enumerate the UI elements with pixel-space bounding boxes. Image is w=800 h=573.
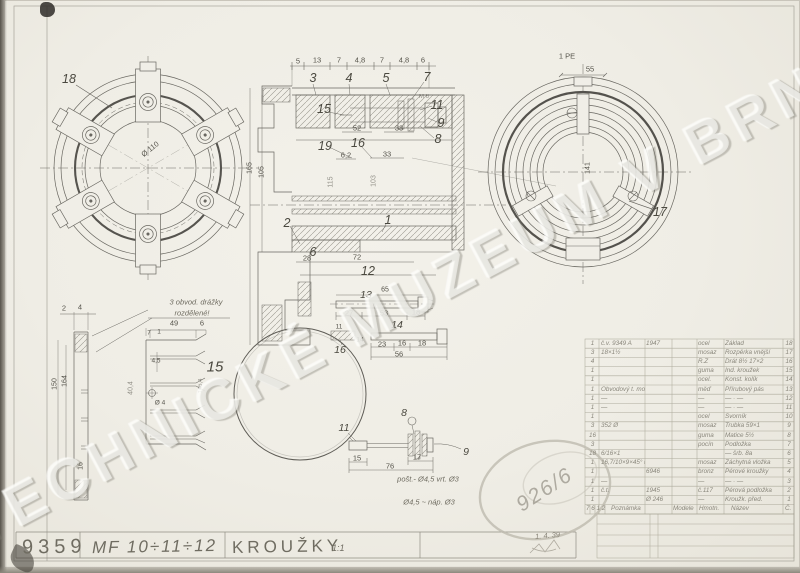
table-cell: 18 xyxy=(784,340,794,347)
balloon-part-8-detail: 8 xyxy=(401,407,407,419)
dim-label: 103 xyxy=(371,175,378,187)
dim-label: 53 xyxy=(380,309,388,318)
balloon-part-9: 9 xyxy=(438,116,445,130)
table-cell: — xyxy=(601,478,645,485)
table-cell: 4 xyxy=(586,358,599,365)
balloon-part-12: 12 xyxy=(361,264,375,278)
table-row: 186/16×1— šrb. 8a6 xyxy=(585,449,794,458)
table-cell: — xyxy=(601,404,645,411)
dim-label: 55 xyxy=(586,65,594,74)
table-cell: Ø 246 xyxy=(646,496,696,503)
table-cell: 11 xyxy=(784,404,794,411)
dim-label: 6 xyxy=(421,56,425,65)
dim-label: 52 xyxy=(353,124,361,133)
table-cell: ocel xyxy=(698,340,724,347)
balloon-part-6: 6 xyxy=(310,245,317,259)
table-cell: — · — xyxy=(725,395,783,402)
balloon-part-16: 16 xyxy=(351,136,365,150)
table-cell: 1 xyxy=(586,404,599,411)
table-cell: 1 xyxy=(586,376,599,383)
dim-label: 27 xyxy=(345,309,353,318)
dim-label: 7 xyxy=(337,56,341,65)
dim-label: 165 xyxy=(247,162,254,174)
balloon-part-4: 4 xyxy=(346,71,353,85)
table-cell: Záchytná vložka xyxy=(725,459,783,466)
dim-label: 6,2 xyxy=(341,151,351,160)
dim-label: 1 xyxy=(157,329,161,336)
balloon-part-9-detail: 9 xyxy=(463,446,469,458)
drawing-title: KROUŽKY xyxy=(232,536,343,558)
table-cell: — xyxy=(601,395,645,402)
balloon-part-17: 17 xyxy=(653,205,667,219)
thread-note: M 6 xyxy=(419,94,429,100)
table-row: 1——— · —3 xyxy=(585,477,794,486)
balloon-part-15: 15 xyxy=(317,102,331,116)
scan-blob-top-left xyxy=(40,2,55,17)
table-cell: 3 xyxy=(586,441,599,448)
table-cell: 14 xyxy=(784,376,794,383)
table-row: 116,7/10×9×45° ØmosazZáchytná vložka5 xyxy=(585,459,794,468)
hole-note-line1: pošt.- Ø4,5 vrt. Ø3 xyxy=(397,475,459,484)
balloon-part-19: 19 xyxy=(318,139,332,153)
balloon-part-2: 2 xyxy=(284,216,291,230)
table-cell: 1945 xyxy=(646,487,696,494)
drawing-scale: 1:1 xyxy=(332,543,345,553)
dim-label: 16 xyxy=(398,339,406,348)
dim-label: 49 xyxy=(170,319,178,328)
dim-label: 164 xyxy=(62,375,69,387)
dim-label: 146,4 xyxy=(198,378,204,393)
table-cell: 1 xyxy=(586,395,599,402)
table-cell: mosaz xyxy=(698,422,724,429)
table-cell: 18 xyxy=(586,450,599,457)
parts-table-footer: 7 6 1 2 Poznámka Modele Hmotn. Název Č. xyxy=(585,504,794,514)
scan-edge-bottom xyxy=(0,566,800,573)
dim-label: 23 xyxy=(378,340,386,349)
table-cell: 5 xyxy=(784,459,794,466)
table-cell: 6/16×1 xyxy=(601,450,645,457)
dim-label: 141 xyxy=(585,162,592,174)
table-cell: 1 xyxy=(586,413,599,420)
table-cell: měď xyxy=(698,386,724,393)
table-cell: — xyxy=(698,404,724,411)
table-cell: 1 xyxy=(586,468,599,475)
dim-label: 7 xyxy=(147,330,151,337)
footer-note: Poznámka xyxy=(611,505,641,512)
table-cell: ocel xyxy=(698,413,724,420)
dim-label: 18 xyxy=(418,339,426,348)
table-cell: Matice 5½ xyxy=(725,432,783,439)
balloon-part-8: 8 xyxy=(435,132,442,146)
table-cell: 16 xyxy=(586,432,599,439)
table-cell: 1 xyxy=(784,496,794,503)
table-cell: č.117 xyxy=(698,487,724,494)
balloon-part-3: 3 xyxy=(310,71,317,85)
footer-col3: Název xyxy=(731,505,749,512)
groove-note-line2: rozdělené! xyxy=(174,309,209,318)
dim-label: 17 xyxy=(413,453,421,462)
balloon-part-15-detail: 15 xyxy=(207,359,224,376)
table-cell: guma xyxy=(698,367,724,374)
table-cell: 352 Ø xyxy=(601,422,645,429)
dim-label: 4 xyxy=(78,303,82,312)
table-cell: bronz xyxy=(698,468,724,475)
table-row: 1gumaInd. kroužek15 xyxy=(585,367,794,376)
table-cell: 6946 xyxy=(646,468,696,475)
table-cell: 1 xyxy=(586,340,599,347)
balloon-part-18: 18 xyxy=(62,72,76,86)
table-cell: — xyxy=(698,496,724,503)
table-cell: 18×1½ xyxy=(601,349,645,356)
table-cell: 3 xyxy=(586,349,599,356)
table-cell: č.v. 9349 A xyxy=(601,340,645,347)
table-cell: 1 xyxy=(586,459,599,466)
table-cell: 1 xyxy=(586,386,599,393)
table-row: 3352 ØmosazTrubka 59×19 xyxy=(585,422,794,431)
table-cell: 1947 xyxy=(646,340,696,347)
table-row: 1——— · —12 xyxy=(585,394,794,403)
table-cell: Svorník xyxy=(725,413,783,420)
model-designation: MF 10÷11÷12 xyxy=(92,536,217,558)
footer-mini-cells: 7 6 1 2 xyxy=(586,505,605,512)
table-cell: Obvodový t. mosazný ¼ m. xyxy=(601,386,645,393)
dim-label: 65 xyxy=(381,287,389,294)
dim-label: 4,8 xyxy=(399,56,409,65)
table-cell: Základ xyxy=(725,340,783,347)
table-cell: — · — xyxy=(725,478,783,485)
dim-label: 105 xyxy=(259,166,266,178)
dim-label: 4,8 xyxy=(355,56,365,65)
table-cell: Ind. kroužek xyxy=(725,367,783,374)
table-cell: Rozpěrka vnější xyxy=(725,349,783,356)
table-cell: 8 xyxy=(784,432,794,439)
balloon-part-16-detail: 16 xyxy=(334,344,346,356)
drawing-number: 9359 xyxy=(22,535,87,559)
table-cell: Drát 8½ 17×2 xyxy=(725,358,783,365)
groove-note-line1: 3 obvod. drážky xyxy=(170,298,223,307)
table-cell: 13 xyxy=(784,386,794,393)
balloon-part-14-detail: 14 xyxy=(391,319,403,331)
table-cell: — · — xyxy=(725,404,783,411)
table-row: 1Obvodový t. mosazný ¼ m.měďPřírubový pá… xyxy=(585,385,794,394)
balloon-part-5: 5 xyxy=(383,71,390,85)
dim-label: 56 xyxy=(395,350,403,359)
table-row: 3pocínPodložka7 xyxy=(585,440,794,449)
table-cell: — xyxy=(698,395,724,402)
table-row: 16gumaMatice 5½8 xyxy=(585,431,794,440)
table-cell: Konst. kolík xyxy=(725,376,783,383)
table-row: 16946bronzPérové kroužky4 xyxy=(585,468,794,477)
balloon-part-11-detail: 11 xyxy=(339,422,350,434)
table-row: 4R.ZDrát 8½ 17×216 xyxy=(585,357,794,366)
table-cell: R.Z xyxy=(698,358,724,365)
dim-label: 5 xyxy=(296,57,300,66)
table-cell: Trubka 59×1 xyxy=(725,422,783,429)
table-cell: 3 xyxy=(784,478,794,485)
table-cell: Podložka xyxy=(725,441,783,448)
dim-label: 2 xyxy=(62,304,66,313)
parts-table: 1č.v. 9349 A1947ocelZáklad18318×1½mosazR… xyxy=(585,339,794,514)
balloon-part-1: 1 xyxy=(385,213,392,227)
table-cell: guma xyxy=(698,432,724,439)
table-cell: 9 xyxy=(784,422,794,429)
footer-col2: Hmotn. xyxy=(699,505,719,512)
dim-label: 33 xyxy=(395,124,403,133)
table-cell: mosaz xyxy=(698,459,724,466)
plate-note: 1 PE xyxy=(559,52,575,61)
footer-col1: Modele xyxy=(673,505,694,512)
table-cell: 16,7/10×9×45° Ø xyxy=(601,459,645,466)
dim-label: 14 xyxy=(356,337,363,344)
table-cell: Pérové kroužky xyxy=(725,468,783,475)
dim-label: 13 xyxy=(313,56,321,65)
dim-label: 150 xyxy=(52,378,59,390)
dim-label: 6 xyxy=(200,319,204,328)
balloon-part-13-detail: 13 xyxy=(360,289,372,301)
dim-label: 115 xyxy=(328,176,335,187)
table-cell: 1 xyxy=(586,478,599,485)
dim-label: 15 xyxy=(353,454,361,463)
table-cell: 17 xyxy=(784,349,794,356)
table-row: 1——— · —11 xyxy=(585,403,794,412)
table-cell: 10 xyxy=(784,413,794,420)
table-cell: 6 xyxy=(784,450,794,457)
dim-label: 7 xyxy=(380,56,384,65)
table-row: 1č.v. 9349 A1947ocelZáklad18 xyxy=(585,339,794,348)
table-row: 1ocel.Konst. kolík14 xyxy=(585,376,794,385)
table-cell: 1 xyxy=(586,496,599,503)
table-cell: č.t. xyxy=(601,487,645,494)
table-cell: Kroužk. před. xyxy=(725,496,783,503)
table-cell: 16 xyxy=(784,358,794,365)
table-cell: 3 xyxy=(586,422,599,429)
balloon-part-7: 7 xyxy=(424,70,431,84)
table-cell: Pérová podložka xyxy=(725,487,783,494)
scanned-drawing-sheet: 5 13 7 4,8 7 4,8 6 52 33 6,2 33 72 28 16… xyxy=(0,0,800,573)
table-cell: 1 xyxy=(586,367,599,374)
footer-col4: Č. xyxy=(785,505,791,512)
table-row: 1ocelSvorník10 xyxy=(585,413,794,422)
dim-label: 18 xyxy=(412,308,420,317)
table-cell: 4 xyxy=(784,468,794,475)
table-cell: — šrb. 8a xyxy=(725,450,783,457)
scan-edge-left xyxy=(0,0,7,573)
dim-label: 76 xyxy=(386,462,394,471)
dim-label: 40,4 xyxy=(128,381,135,395)
table-cell: 12 xyxy=(784,395,794,402)
table-row: 1č.t.1945č.117Pérová podložka2 xyxy=(585,486,794,495)
table-cell: 15 xyxy=(784,367,794,374)
table-cell: 1 xyxy=(586,487,599,494)
balloon-part-11: 11 xyxy=(431,98,444,112)
dim-label: 16 xyxy=(78,462,85,470)
table-cell: 7 xyxy=(784,441,794,448)
dim-label: 4,5 xyxy=(151,358,160,365)
dim-label: Ø 4 xyxy=(155,400,165,407)
table-cell: pocín xyxy=(698,441,724,448)
table-row: 318×1½mosazRozpěrka vnější17 xyxy=(585,348,794,357)
dim-label: 33 xyxy=(383,150,391,159)
dim-label: 72 xyxy=(353,253,361,262)
table-cell: mosaz xyxy=(698,349,724,356)
table-cell: 2 xyxy=(784,487,794,494)
table-cell: Přírubový pás xyxy=(725,386,783,393)
table-cell: ocel. xyxy=(698,376,724,383)
dim-label: 11 xyxy=(336,324,343,331)
hole-note-line2: Ø4,5 ~ náp. Ø3 xyxy=(403,498,455,507)
table-cell: — xyxy=(698,478,724,485)
